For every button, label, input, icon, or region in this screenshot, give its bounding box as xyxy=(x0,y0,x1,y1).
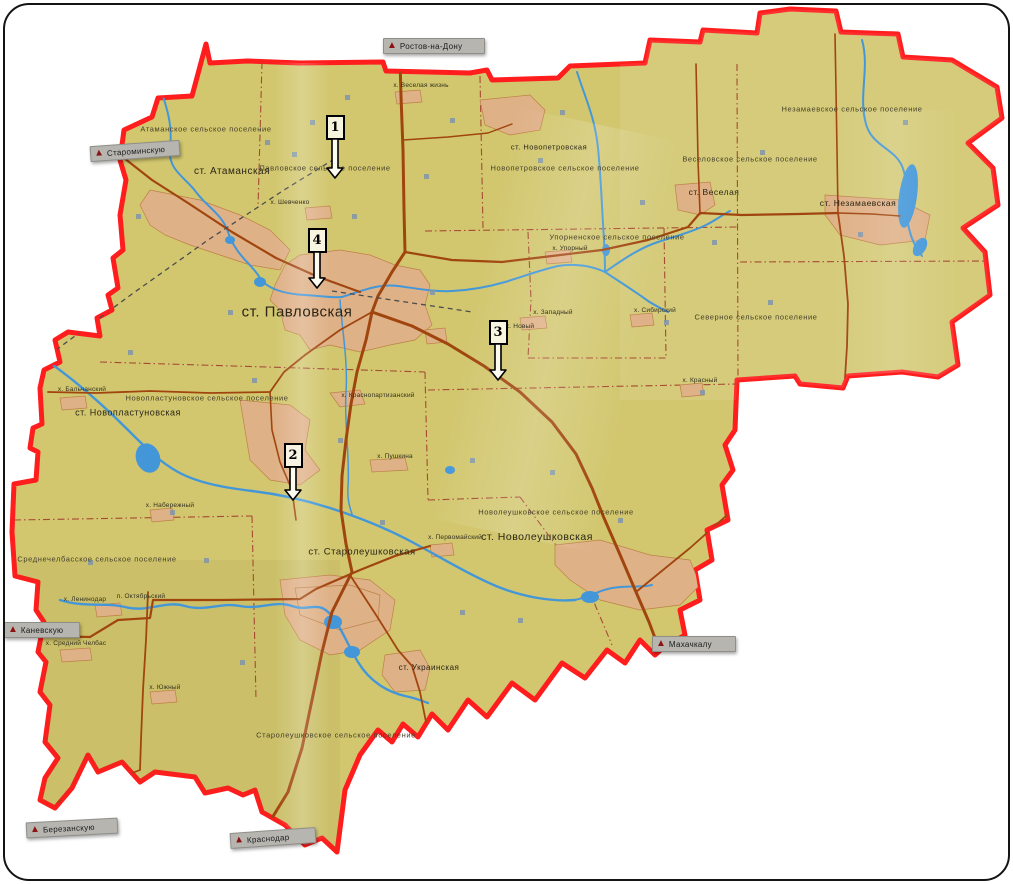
route-marker: 2 xyxy=(283,443,303,501)
sign-logo-triangle-icon: ▲ xyxy=(656,639,666,649)
settlement-label: Атаманское сельское поселение xyxy=(140,125,271,133)
settlement-label: Старолеушковское сельское поселение xyxy=(256,731,416,739)
station-label: ст. Новолеушковская xyxy=(481,532,593,543)
sign-label: Каневскую xyxy=(21,626,63,635)
station-label: ст. Старолеушковская xyxy=(308,547,415,557)
route-arrow-down-icon xyxy=(307,252,327,289)
settlement-label: Северное сельское поселение xyxy=(694,313,817,321)
settlement-label: Незамаевское сельское поселение xyxy=(781,105,922,113)
hamlet-label: х. Первомайский xyxy=(428,535,482,542)
sign-label: Березанскую xyxy=(43,822,95,834)
hamlet-label: п. Октябрьский xyxy=(117,594,165,601)
hamlet-label: х. Красный xyxy=(682,378,717,385)
station-label: ст. Незамаевская xyxy=(820,199,896,208)
settlement-label: Веселовское сельское поселение xyxy=(682,155,817,163)
settlement-label: Новолеушковское сельское поселение xyxy=(478,508,634,516)
sign-logo-triangle-icon: ▲ xyxy=(30,825,40,836)
hamlet-label: х. Упорный xyxy=(552,246,587,253)
direction-sign: ▲Махачкалу xyxy=(652,636,736,652)
sign-logo-triangle-icon: ▲ xyxy=(8,625,18,635)
route-arrow-down-icon xyxy=(488,344,508,381)
hamlet-label: х. Западный xyxy=(533,310,572,317)
sign-label: Махачкалу xyxy=(669,640,712,649)
route-marker: 3 xyxy=(488,320,508,381)
hamlet-label: х. Пушкина xyxy=(377,454,413,461)
sign-label: Ростов-на-Дону xyxy=(400,42,462,51)
sign-logo-triangle-icon: ▲ xyxy=(94,148,105,159)
direction-sign: ▲Березанскую xyxy=(26,818,119,839)
route-marker-number: 1 xyxy=(326,115,345,140)
station-label: ст. Новопластуновская xyxy=(75,409,181,418)
hamlet-label: х. Веселая жизнь xyxy=(393,83,448,90)
direction-sign: ▲Ростов-на-Дону xyxy=(383,38,485,54)
route-marker-number: 4 xyxy=(308,228,327,253)
station-label: ст. Павловская xyxy=(242,305,353,320)
hamlet-label: х. Новый xyxy=(506,324,535,331)
route-marker-number: 3 xyxy=(489,320,508,345)
hamlet-label: х. Шевченко xyxy=(271,200,310,207)
settlement-label: Новопетровское сельское поселение xyxy=(490,164,639,172)
sign-label: Краснодар xyxy=(247,832,290,844)
sign-label: Староминскую xyxy=(107,144,166,157)
sign-logo-triangle-icon: ▲ xyxy=(234,835,245,846)
hamlet-label: х. Средний Челбас xyxy=(46,641,106,648)
station-label: ст. Веселая xyxy=(689,188,740,197)
direction-sign: ▲Каневскую xyxy=(4,622,80,638)
route-marker-number: 2 xyxy=(284,443,303,468)
sign-logo-triangle-icon: ▲ xyxy=(387,41,397,51)
hamlet-label: х. Краснопартизанский xyxy=(341,393,414,400)
settlement-label: Новопластуновское сельское поселение xyxy=(125,394,288,402)
hamlet-label: х. Бальчанский xyxy=(58,387,106,394)
settlement-label: Среднечелбасское сельское поселение xyxy=(17,555,176,563)
direction-sign: ▲Староминскую xyxy=(90,140,181,162)
route-arrow-down-icon xyxy=(283,467,303,501)
direction-sign: ▲Краснодар xyxy=(230,827,317,849)
district-map-photo: ст. Павловскаяст. Атаманскаяст. Новопетр… xyxy=(0,0,1013,884)
hamlet-label: х. Набережный xyxy=(146,503,194,510)
route-arrow-down-icon xyxy=(325,139,345,179)
hamlet-label: х. Ленинодар xyxy=(64,597,106,604)
station-label: ст. Новопетровская xyxy=(511,143,587,151)
hamlet-label: х. Южный xyxy=(149,685,180,692)
labels-layer: ст. Павловскаяст. Атаманскаяст. Новопетр… xyxy=(0,0,1013,884)
settlement-label: Упорненское сельское поселение xyxy=(549,233,684,241)
station-label: ст. Украинская xyxy=(399,664,460,672)
route-marker: 4 xyxy=(307,228,327,289)
hamlet-label: х. Сибирский xyxy=(634,308,676,315)
route-marker: 1 xyxy=(325,115,345,179)
